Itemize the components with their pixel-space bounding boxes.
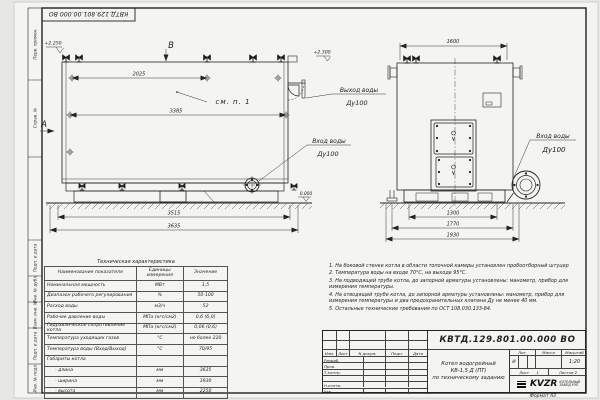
tb-sheet: Лист 1 [509, 368, 548, 375]
spec-col-name: Наименование показателя [45, 267, 137, 281]
tb-col-podp: Подп. [385, 349, 408, 356]
table-row: Габариты котла [45, 355, 228, 366]
product-name: Котел водогрейный КВ-1,5 Д (ПТ) по техни… [427, 349, 509, 394]
tb-col-docnum: N докум. [349, 349, 385, 356]
side-inlet-size: Ду100 [316, 150, 338, 158]
top-doc-number: КВТД.129.801.00.000 ВО [49, 10, 129, 17]
section-label-a: А [40, 120, 47, 130]
product-line-3: по техническому заданию [432, 375, 504, 382]
table-row: - ширинамм1930 [45, 377, 228, 388]
level-0000: 0.000 [300, 191, 313, 197]
tb-col-data: Дата [408, 349, 427, 356]
tb-role-utv: Утв. [323, 388, 363, 395]
dim-1770: 1770 [447, 222, 460, 228]
spec-table-title: Техническая характеристика [44, 259, 228, 265]
product-line-1: Котел водогрейный [441, 361, 495, 368]
front-outlet-label: Выход воды [340, 87, 378, 94]
dim-1300: 1300 [447, 211, 460, 217]
tb-lit-value: И [509, 355, 518, 368]
company-area: KVZR КОТЕЛЬНЫЙ ЗАВОД РЭП [509, 375, 587, 393]
drawing-sheet: { "stamp_top": { "doc_number": "КВТД.129… [0, 0, 600, 400]
dim-3385: 3385 [170, 109, 183, 115]
note-1: 1. На боковой стенке котла в области топ… [329, 263, 590, 269]
table-row: - высотамм2250 [45, 387, 228, 398]
dim-1930: 1930 [447, 233, 460, 239]
table-row: Номинальная мощностьМВт1,5 [45, 281, 228, 292]
tb-col-list: Лист [336, 349, 349, 356]
table-row: Расход водым3/ч52 [45, 302, 228, 313]
front-outlet-size: Ду100 [345, 99, 367, 107]
spec-col-value: Значение [184, 267, 228, 281]
stamp-podp-data-2: Подп. и дата [33, 331, 38, 360]
tb-sheet-label: Лист [519, 370, 529, 375]
note-2: 2. Температура воды на входе 70°С, на вы… [329, 270, 590, 276]
note-3: 3. На подводящей трубе котла, до запорно… [329, 278, 590, 291]
tb-sheets-label: Листов [559, 370, 574, 375]
level-2250: +2.250 [44, 41, 61, 47]
front-inlet-label: Вход воды [536, 133, 570, 140]
see-note-ref: см. п. 1 [215, 98, 250, 106]
technical-notes: 1. На боковой стенке котла в области топ… [329, 263, 590, 313]
table-row: - длинамм3635 [45, 366, 228, 377]
stamp-sprav-n: Справ. № [33, 107, 38, 128]
view-label-b: В [168, 41, 174, 51]
tb-sheets: Листов 2 [548, 368, 587, 375]
front-inlet-size: Ду100 [542, 146, 567, 154]
stamp-perv-primen: Перв. примен. [33, 28, 38, 59]
dim-3515: 3515 [168, 211, 181, 217]
title-block-doc-number: КВТД.129.801.00.000 ВО [427, 331, 587, 349]
title-block: Изм. Лист N докум. Подп. Дата Разраб. Пр… [322, 330, 586, 393]
tb-sheet-value: 1 [536, 370, 538, 375]
company-name: КОТЕЛЬНЫЙ ЗАВОД РЭП [559, 381, 580, 389]
stamp-inv-podl: Инв. № подл. [33, 364, 38, 393]
tb-scale-value: 1:20 [561, 355, 587, 368]
table-row: Рабочее давление водыМПа (кгс/см2)0,6 (6… [45, 313, 228, 324]
note-4: 4. На отводящей трубе котла, до запорной… [329, 292, 590, 305]
table-row: Температура уходящих газов°Сне более 220 [45, 334, 228, 345]
spec-col-units: Единицы измерения [136, 267, 184, 281]
dim-3635: 3635 [168, 224, 181, 230]
stamp-vzam-inv: Взам. инв. № [33, 300, 38, 329]
tb-sheets-value: 2 [575, 370, 577, 375]
dim-2025: 2025 [133, 72, 146, 78]
note-5: 5. Остальные технические требования по О… [329, 306, 590, 312]
kvzr-logo-icon [517, 380, 526, 389]
table-row: Диапазон рабочего регулирования%50-100 [45, 291, 228, 302]
side-inlet-label: Вход воды [312, 138, 346, 145]
kvzr-logo-text: KVZR [530, 379, 557, 389]
level-2300: +2.300 [313, 50, 330, 56]
stamp-podp-data-1: Подп. и дата [33, 243, 38, 272]
table-row: Гидравлическое сопротивление котлаМПа (к… [45, 323, 228, 334]
table-row: Температура воды (Вход/Выход)°С70/95 [45, 345, 228, 356]
dim-1600: 1600 [447, 39, 460, 45]
tb-col-izm: Изм. [323, 349, 336, 356]
spec-table: Наименование показателя Единицы измерени… [44, 266, 228, 399]
product-line-2: КВ-1,5 Д (ПТ) [451, 368, 487, 375]
stamp-inv-dubl: Инв. № дубл. [33, 275, 38, 304]
spec-header-row: Наименование показателя Единицы измерени… [45, 267, 228, 281]
format-label: Формат А3 [500, 394, 586, 399]
company-line-2: ЗАВОД РЭП [559, 384, 580, 388]
